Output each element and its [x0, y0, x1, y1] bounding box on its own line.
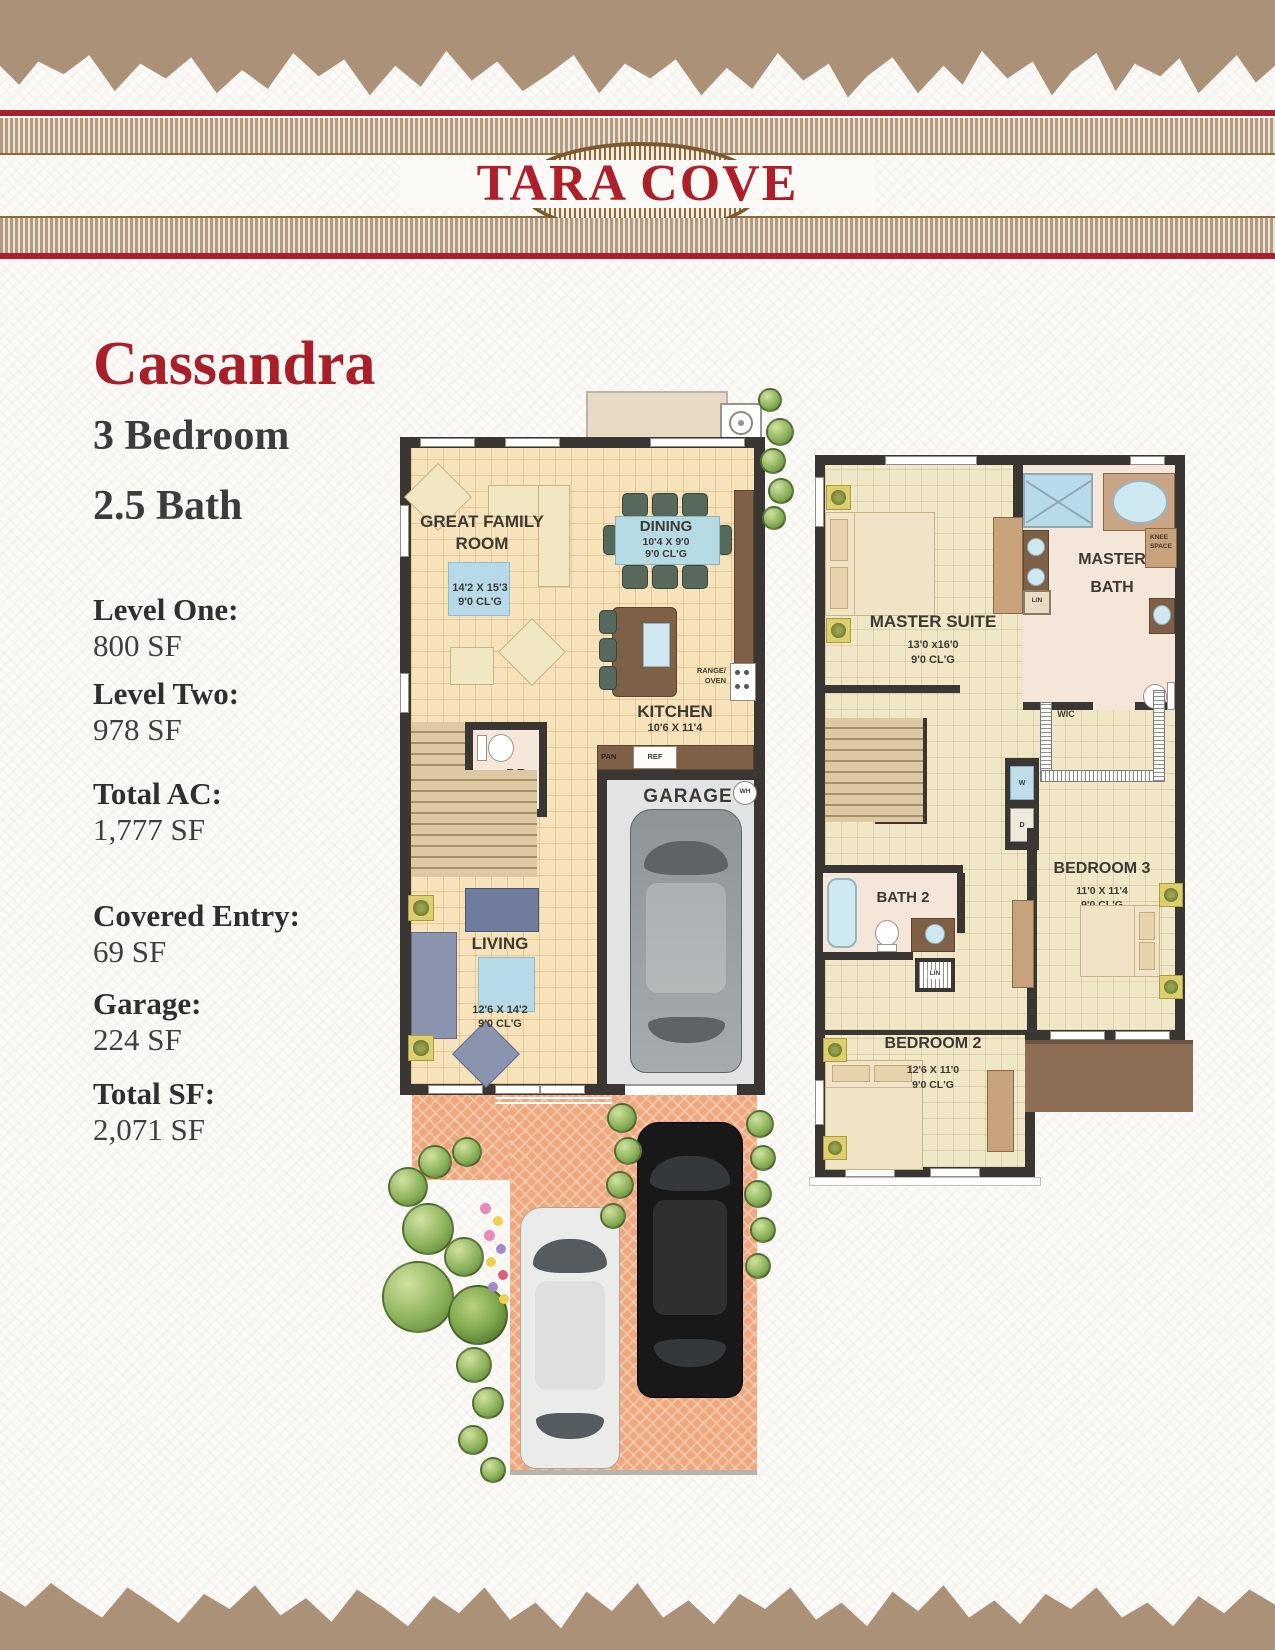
- loveseat: [465, 888, 539, 932]
- window: [815, 477, 824, 527]
- blanket-line: [1134, 906, 1135, 976]
- car-roof: [535, 1281, 606, 1390]
- torn-edge-top: [0, 0, 1275, 106]
- stat-label: Level One:: [93, 592, 239, 628]
- refrigerator-label: REF: [648, 753, 663, 761]
- stat-label: Garage:: [93, 986, 201, 1022]
- great-family-room-dims: 14'2 X 15'3: [452, 583, 507, 594]
- stat-value: 69 SF: [93, 934, 300, 970]
- stat-garage: Garage: 224 SF: [93, 986, 201, 1058]
- dining-dims: 10'4 X 9'0: [642, 537, 689, 548]
- car-rear-window: [536, 1413, 605, 1439]
- range-label-line1: RANGE/: [688, 667, 726, 675]
- stat-total-sf: Total SF: 2,071 SF: [93, 1076, 215, 1148]
- ottoman: [450, 647, 494, 685]
- sink: [1153, 605, 1171, 625]
- nightstand: [1159, 883, 1183, 907]
- car-roof: [653, 1200, 728, 1315]
- level1-floorplan: A/C COMP GREAT FAMILY ROOM 14'2 X 15'3 9…: [400, 385, 775, 1495]
- bedroom3-label: BEDROOM 3: [1054, 861, 1151, 877]
- dresser: [993, 517, 1023, 614]
- car-roof: [646, 883, 725, 993]
- bush: [480, 1457, 506, 1483]
- master-suite-dims: 13'0 x16'0: [907, 640, 958, 651]
- knee-space-label: KNEE SPACE: [1150, 535, 1172, 550]
- stat-value: 2,071 SF: [93, 1112, 215, 1148]
- range-oven-label: RANGE/ OVEN: [688, 667, 726, 684]
- stair-rail: [923, 718, 927, 822]
- garage-wall: [597, 780, 607, 1084]
- washer-label: W: [1019, 780, 1026, 787]
- tree: [452, 1137, 482, 1167]
- sink: [1027, 538, 1045, 556]
- stat-total-ac: Total AC: 1,777 SF: [93, 776, 222, 848]
- flower: [484, 1230, 495, 1241]
- window: [400, 505, 409, 557]
- shrub: [744, 1180, 772, 1208]
- partition-wall: [825, 685, 960, 693]
- flower: [498, 1270, 508, 1280]
- car-rear-window: [648, 1017, 725, 1043]
- window: [650, 438, 745, 447]
- dining-chair: [682, 493, 708, 517]
- island-stool: [599, 610, 617, 634]
- shrub: [606, 1171, 634, 1199]
- shrub: [614, 1137, 642, 1165]
- shrub: [745, 1253, 771, 1279]
- car-windshield: [533, 1239, 608, 1273]
- linen-label: LIN: [1032, 598, 1042, 605]
- wing-sill: [809, 1177, 1041, 1186]
- toilet: [488, 734, 514, 762]
- shrub: [746, 1110, 774, 1138]
- stairs: [411, 722, 465, 770]
- shower: [1023, 473, 1093, 528]
- tree: [382, 1261, 454, 1333]
- community-title: TARA COVE: [0, 158, 1275, 210]
- toilet: [875, 920, 899, 946]
- master-suite-clg: 9'0 CL'G: [911, 655, 955, 666]
- nightstand: [1159, 975, 1183, 999]
- window: [420, 438, 475, 447]
- black-car: [637, 1122, 743, 1398]
- dresser: [1012, 900, 1034, 988]
- car-windshield: [650, 1156, 729, 1192]
- master-bath-label: BATH: [1090, 580, 1133, 596]
- dryer-label: D: [1019, 822, 1024, 829]
- shrub: [762, 506, 786, 530]
- window: [1130, 456, 1165, 465]
- garage-door: [625, 1084, 737, 1095]
- bush: [456, 1347, 492, 1383]
- palm-plant: [448, 1285, 508, 1345]
- garage-wall: [597, 770, 765, 780]
- nightstand: [823, 1136, 847, 1160]
- torn-edge-bottom: [0, 1542, 1275, 1650]
- bedroom2-clg: 9'0 CL'G: [912, 1080, 954, 1091]
- dining-chair: [652, 565, 678, 589]
- flower: [496, 1244, 506, 1254]
- bush: [458, 1425, 488, 1455]
- stat-label: Level Two:: [93, 676, 239, 712]
- flower: [499, 1294, 509, 1304]
- nightstand: [826, 485, 851, 510]
- pillow: [1139, 942, 1155, 970]
- model-baths: 2.5 Bath: [93, 485, 242, 527]
- bush: [472, 1387, 504, 1419]
- pantry-label: PAN: [601, 753, 616, 761]
- flower: [480, 1203, 491, 1214]
- kitchen-label: KITCHEN: [637, 703, 713, 720]
- range-oven: [730, 663, 756, 701]
- shrub: [760, 448, 786, 474]
- island-stool: [599, 638, 617, 662]
- car-windshield: [644, 841, 728, 875]
- closet-rail: [1153, 690, 1165, 782]
- dining-chair: [682, 565, 708, 589]
- living-dims: 12'6 X 14'2: [472, 1005, 527, 1016]
- toilet: [1167, 682, 1175, 710]
- stat-label: Total AC:: [93, 776, 222, 812]
- stat-level-one: Level One: 800 SF: [93, 592, 239, 664]
- stat-covered-entry: Covered Entry: 69 SF: [93, 898, 300, 970]
- blanket-line: [854, 513, 855, 615]
- car-in-garage: [630, 809, 742, 1073]
- water-heater-label: WH: [740, 789, 751, 796]
- shrub: [766, 418, 794, 446]
- dining-clg: 9'0 CL'G: [645, 549, 687, 560]
- shrub: [600, 1203, 626, 1229]
- island-stool: [599, 666, 617, 690]
- rear-patio: [586, 391, 728, 443]
- stairs: [411, 770, 537, 877]
- window: [1115, 1031, 1170, 1040]
- range-label-line2: OVEN: [688, 677, 726, 685]
- great-family-room-label: ROOM: [456, 535, 509, 552]
- white-car: [520, 1207, 620, 1469]
- header-stripe-band-bottom: [0, 218, 1275, 253]
- stat-label: Covered Entry:: [93, 898, 300, 934]
- stat-label: Total SF:: [93, 1076, 215, 1112]
- model-bedrooms: 3 Bedroom: [93, 415, 289, 457]
- sink: [925, 924, 945, 944]
- stat-level-two: Level Two: 978 SF: [93, 676, 239, 748]
- flower: [488, 1282, 498, 1292]
- roof-below: [1025, 1040, 1193, 1112]
- tub-deck: [1103, 473, 1175, 531]
- front-door-opening: [495, 1085, 540, 1094]
- master-suite-label: MASTER SUITE: [870, 613, 997, 630]
- window: [428, 1085, 483, 1094]
- great-family-room-clg: 9'0 CL'G: [458, 597, 502, 608]
- tree: [418, 1145, 452, 1179]
- stat-value: 978 SF: [93, 712, 239, 748]
- living-label: LIVING: [472, 935, 529, 952]
- knee-label-line2: SPACE: [1150, 544, 1172, 551]
- window: [540, 1085, 585, 1094]
- dining-chair: [622, 565, 648, 589]
- stat-value: 800 SF: [93, 628, 239, 664]
- shrub: [758, 388, 782, 412]
- brochure-page: TARA COVE Cassandra 3 Bedroom 2.5 Bath L…: [0, 0, 1275, 1650]
- dining-label: DINING: [640, 519, 693, 534]
- master-bed: [825, 512, 935, 616]
- header-rule-bottom: [0, 253, 1275, 259]
- closet-rail: [1040, 770, 1165, 782]
- flower: [486, 1257, 496, 1267]
- side-door: [400, 673, 409, 713]
- kitchen-dims: 10'6 X 11'4: [648, 723, 703, 734]
- flower: [493, 1216, 503, 1226]
- bath2-wall: [823, 865, 963, 873]
- stat-value: 1,777 SF: [93, 812, 222, 848]
- soaking-tub: [1112, 480, 1168, 524]
- shrub: [768, 478, 794, 504]
- model-name: Cassandra: [93, 333, 376, 395]
- sink: [1027, 568, 1045, 586]
- bedroom2-label: BEDROOM 2: [885, 1036, 982, 1052]
- dining-chair: [622, 493, 648, 517]
- window: [930, 1168, 980, 1177]
- bedroom2-dims: 12'6 X 11'0: [907, 1065, 959, 1076]
- shrub: [607, 1103, 637, 1133]
- living-clg: 9'0 CL'G: [478, 1019, 522, 1030]
- car-rear-window: [654, 1339, 727, 1366]
- shrub: [750, 1145, 776, 1171]
- knee-label-line1: KNEE: [1150, 535, 1172, 542]
- bath2-label: BATH 2: [876, 890, 929, 905]
- shrub: [750, 1217, 776, 1243]
- stat-value: 224 SF: [93, 1022, 201, 1058]
- window: [505, 438, 560, 447]
- side-table: [408, 1035, 434, 1061]
- sofa: [411, 932, 457, 1039]
- entry-steps: [495, 1102, 612, 1104]
- blanket-line: [826, 1087, 922, 1088]
- island-sink: [643, 623, 670, 667]
- dining-chair: [652, 493, 678, 517]
- window: [815, 1080, 824, 1125]
- toilet: [477, 735, 487, 761]
- nightstand: [826, 618, 851, 643]
- entry-steps: [495, 1097, 612, 1099]
- kitchen-counter: [734, 490, 754, 665]
- ac-fan-icon: [729, 411, 753, 435]
- bath2-wall: [823, 952, 913, 960]
- driveway-apron: [510, 1470, 757, 1475]
- nightstand: [823, 1038, 847, 1062]
- pillow: [832, 1065, 870, 1082]
- pillow: [830, 519, 848, 561]
- side-table: [408, 895, 434, 921]
- master-bath-label: MASTER: [1078, 552, 1146, 568]
- pillow: [830, 567, 848, 609]
- linen-label: LIN: [928, 970, 942, 979]
- bath2-wall: [957, 873, 965, 933]
- bathtub: [827, 878, 857, 948]
- header-rule-top: [0, 110, 1275, 116]
- level2-floorplan: LIN KNEE SPACE MASTER BATH MASTER SUITE …: [815, 440, 1195, 1190]
- garage-label: GARAGE: [643, 787, 732, 806]
- bedroom3-dims: 11'0 X 11'4: [1076, 886, 1128, 897]
- pillow: [1139, 912, 1155, 940]
- window: [1050, 1031, 1105, 1040]
- dresser: [987, 1070, 1014, 1152]
- toilet: [877, 944, 897, 952]
- sectional-sofa: [538, 485, 570, 587]
- stairs: [825, 718, 923, 822]
- window: [885, 456, 977, 465]
- wic-label: WIC: [1057, 710, 1075, 719]
- great-family-room-label: GREAT FAMILY: [420, 513, 544, 530]
- bedroom3-bed: [1080, 905, 1160, 977]
- tree: [444, 1237, 484, 1277]
